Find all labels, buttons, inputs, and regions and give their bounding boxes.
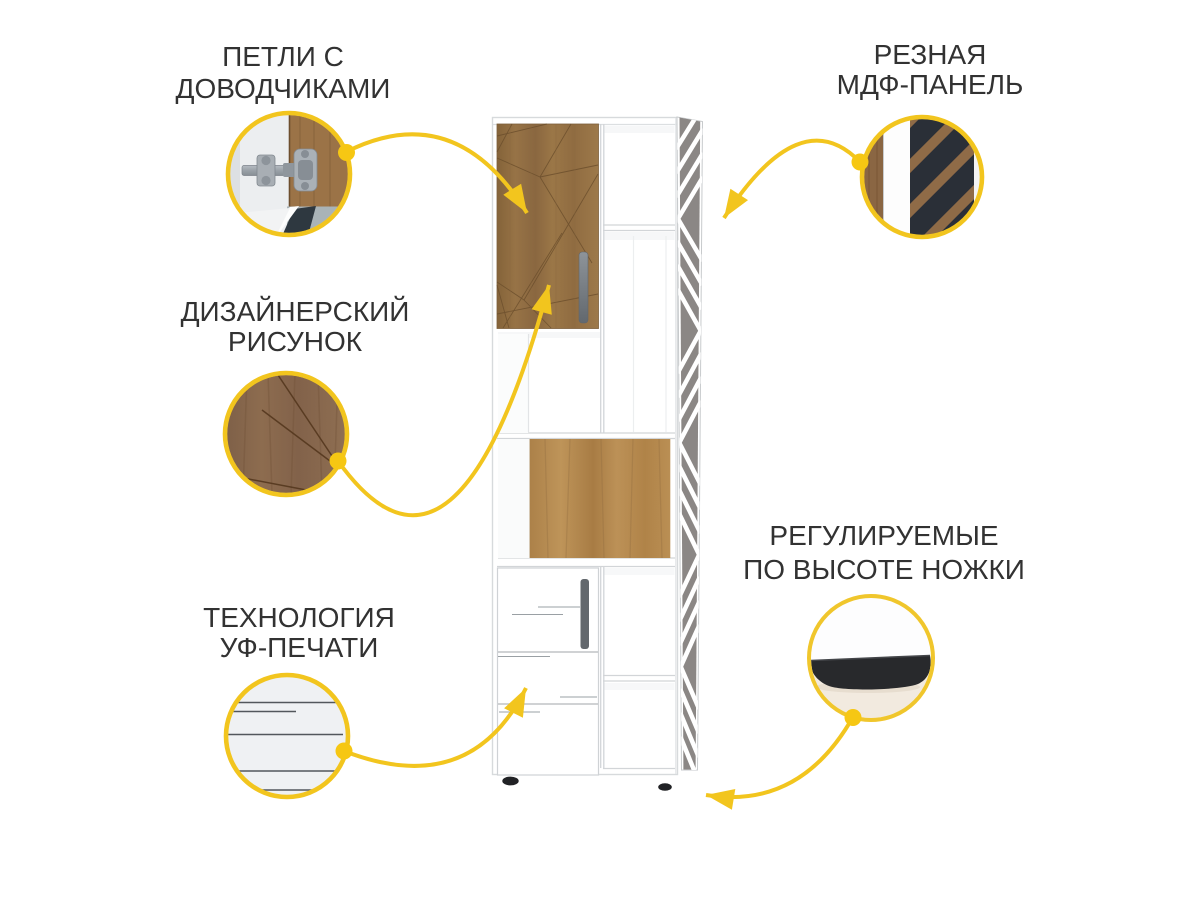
- svg-text:ТЕХНОЛОГИЯ: ТЕХНОЛОГИЯ: [203, 602, 395, 633]
- svg-text:ПО ВЫСОТЕ НОЖКИ: ПО ВЫСОТЕ НОЖКИ: [743, 554, 1025, 585]
- svg-text:МДФ-ПАНЕЛЬ: МДФ-ПАНЕЛЬ: [837, 69, 1024, 100]
- svg-text:РЕГУЛИРУЕМЫЕ: РЕГУЛИРУЕМЫЕ: [769, 520, 998, 551]
- svg-text:ПЕТЛИ С: ПЕТЛИ С: [222, 41, 344, 72]
- svg-text:ДОВОДЧИКАМИ: ДОВОДЧИКАМИ: [176, 73, 391, 104]
- svg-text:РЕЗНАЯ: РЕЗНАЯ: [874, 39, 987, 70]
- svg-text:УФ-ПЕЧАТИ: УФ-ПЕЧАТИ: [220, 632, 379, 663]
- svg-text:РИСУНОК: РИСУНОК: [228, 326, 363, 357]
- svg-text:ДИЗАЙНЕРСКИЙ: ДИЗАЙНЕРСКИЙ: [181, 296, 410, 327]
